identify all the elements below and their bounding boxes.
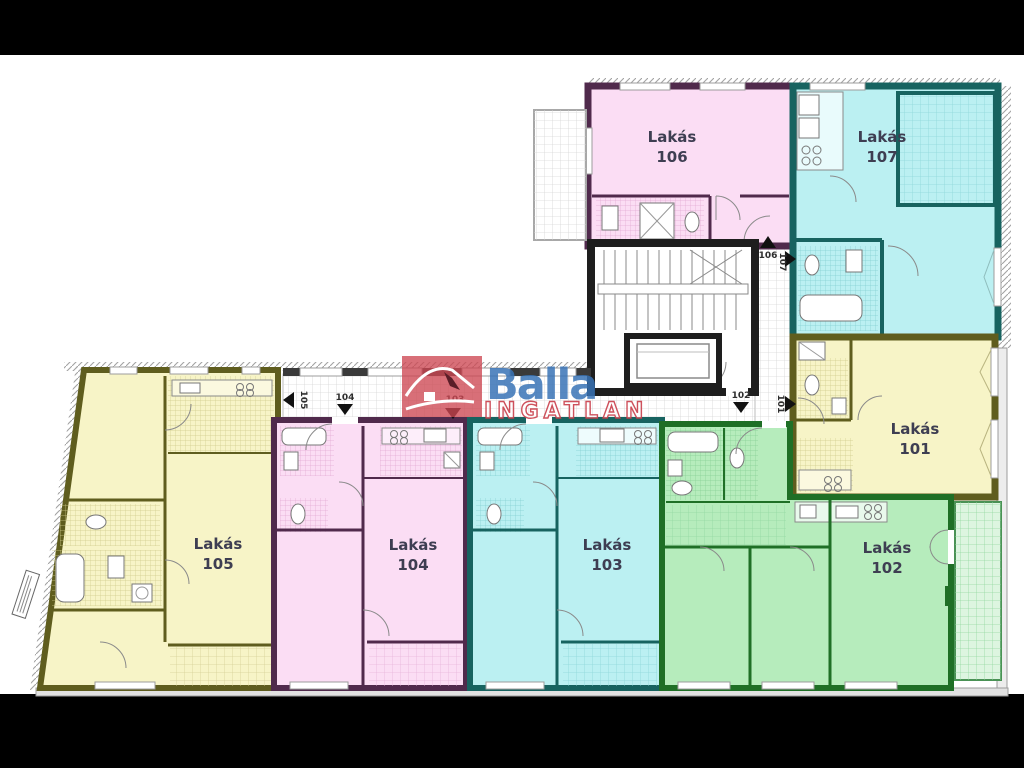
floorplan-image: Lakás 106 Lakás 107 [0,0,1024,768]
apartment-104-label: Lakás [389,536,438,554]
apartment-107-number: 107 [866,148,897,166]
apartment-102-label: Lakás [863,539,912,557]
apartment-105-number: 105 [202,555,233,573]
apartment-103: Lakás 103 [470,417,662,689]
apartment-104-number: 104 [397,556,428,574]
door-label-104: 104 [336,393,355,403]
pillar [945,586,955,606]
terrace-door-gap [948,530,954,564]
apartment-106: Lakás 106 [585,83,793,246]
apartment-101: Lakás 101 [793,337,998,497]
apartment-102-number: 102 [871,559,902,577]
elevator [627,336,719,386]
apartment-101-label: Lakás [891,420,940,438]
apartment-107: Lakás 107 [793,83,1001,337]
door-label-107: 107 [777,253,787,272]
balcony-106 [534,110,586,240]
apartment-107-label: Lakás [858,128,907,146]
door-gap-102 [762,421,786,428]
door-label-106: 106 [759,251,778,261]
apartment-106-label: Lakás [648,128,697,146]
apartment-106-number: 106 [656,148,687,166]
door-label-101: 101 [775,395,785,414]
door-label-102: 102 [732,391,751,401]
apartment-105-label: Lakás [194,535,243,553]
terrace-102 [955,502,1001,680]
apartment-101-number: 101 [899,440,930,458]
apartment-103-number: 103 [591,556,622,574]
logo-subtitle-text: INGATLAN [484,399,648,424]
house-window [424,392,435,401]
door-gap-104 [332,417,358,424]
apartment-105: Lakás 105 [40,367,278,689]
apartment-103-label: Lakás [583,536,632,554]
apartment-104: Lakás 104 [274,417,466,689]
door-label-105: 105 [298,391,308,410]
